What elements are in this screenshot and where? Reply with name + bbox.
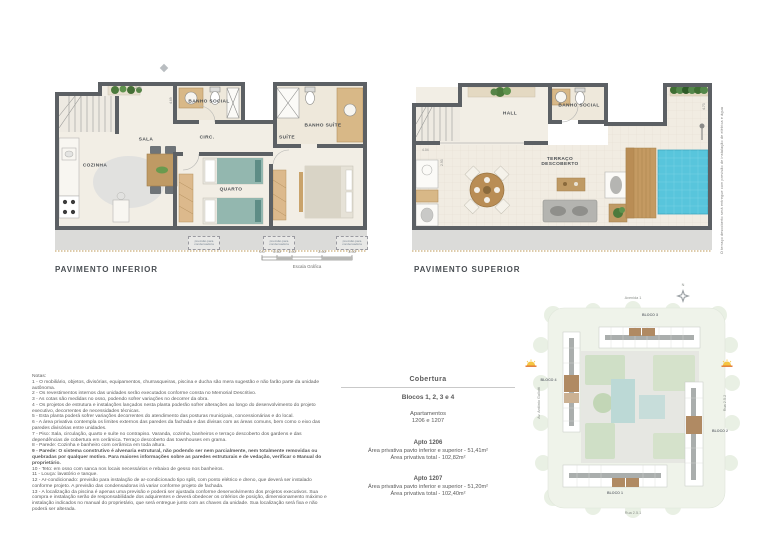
- bloco-1-label: BLOCO 1: [600, 491, 630, 495]
- dimension-label: 4.04: [422, 148, 429, 152]
- terrace-side-note: O terraço descoberto será entregue com p…: [720, 86, 724, 254]
- plan-title-inferior: PAVIMENTO INFERIOR: [55, 265, 158, 274]
- info-apartments: Apartamentos 1206 e 1207: [337, 411, 519, 425]
- stairs: [416, 107, 460, 141]
- info-blocks: Blocos 1, 2, 3 e 4: [337, 394, 519, 401]
- unit-total-line: Área privativa total - 102,40m²: [337, 491, 519, 497]
- site-plan-drawing: [533, 283, 768, 539]
- balcony-strip: [412, 230, 712, 251]
- sofa: [543, 200, 597, 222]
- floor-plan-superior: HALL BANHO SOCIAL TERRAÇO DESCOBERTO 4.0…: [412, 62, 712, 254]
- dimension-label: 4.73: [702, 103, 706, 110]
- plant-box: [609, 204, 627, 222]
- scale-bar: 0.0 0.50 1.00 2.00 3.00 Escala Gráfica: [258, 246, 362, 274]
- plan-sheet: COZINHA SALA CIRC. BANHO SOCIAL SUÍTE BA…: [0, 0, 768, 549]
- north-label: N: [671, 283, 695, 287]
- side-cabinet: [605, 172, 627, 198]
- bedroom-wardrobe: [179, 174, 193, 222]
- room-label-suite: SUÍTE: [279, 136, 295, 141]
- unit-area-line: Área privativa pavto inferior e superior…: [337, 484, 519, 490]
- courtyard: [581, 351, 699, 463]
- north-arrow-icon: [676, 289, 690, 303]
- bloco-4-label: BLOCO 4: [535, 378, 562, 382]
- note-item: 13 - A localização da piscina é apenas u…: [32, 490, 333, 513]
- dimension-label: 2.44: [135, 86, 142, 90]
- note-item: 4 - Os projetos de estrutura e instalaçõ…: [32, 403, 333, 415]
- unit-name: Apto 1207: [337, 476, 519, 482]
- site-plan: N Avenida 1 Rua 2.5.1 Av. Antônio Gallot…: [533, 283, 768, 539]
- room-label-banho-social: BANHO SOCIAL: [188, 100, 230, 105]
- room-label-terraco: TERRAÇO DESCOBERTO: [539, 157, 581, 167]
- room-label-banho-social: BANHO SOCIAL: [558, 104, 600, 109]
- notes-block: Notas: 1 - O mobiliário, objetos, divisó…: [32, 374, 333, 513]
- sun-icon: [721, 359, 733, 368]
- terrace-table: [464, 166, 510, 214]
- unit-1207: Apto 1207 Área privativa pavto inferior …: [337, 476, 519, 497]
- stairs: [59, 96, 115, 132]
- unit-info-panel: Cobertura Blocos 1, 2, 3 e 4 Apartamento…: [337, 376, 519, 497]
- room-label-hall: HALL: [503, 112, 517, 117]
- svg-text:0.0: 0.0: [259, 250, 264, 254]
- svg-text:0.50: 0.50: [273, 250, 280, 254]
- room-label-banho-suite: BANHO SUÍTE: [302, 124, 344, 129]
- apartments-numbers: 1206 e 1207: [337, 418, 519, 425]
- note-item: 1 - O mobiliário, objetos, divisórias, e…: [32, 380, 333, 392]
- unit-1206: Apto 1206 Área privativa pavto inferior …: [337, 440, 519, 461]
- note-item: 12 - Ar-condicionado: previsão para inst…: [32, 478, 333, 490]
- kitchen-counter: [59, 138, 79, 218]
- street-label-bottom: Rua 2.5.1: [611, 511, 655, 515]
- room-label-sala: SALA: [139, 138, 153, 143]
- bloco-3-label: BLOCO 3: [635, 313, 665, 317]
- condenser-box: previsão para condensadora: [188, 236, 220, 250]
- unit-area-line: Área privativa pavto inferior e superior…: [337, 448, 519, 454]
- street-label-top: Avenida 1: [613, 296, 653, 300]
- unit-total-line: Área privativa total - 102,82m²: [337, 455, 519, 461]
- sun-icon: [525, 359, 537, 368]
- svg-text:1.00: 1.00: [288, 250, 295, 254]
- pool-deck: [626, 148, 656, 218]
- street-label-left: Av. Antônio Gallotti: [537, 373, 541, 433]
- floor-plan-inferior: COZINHA SALA CIRC. BANHO SOCIAL SUÍTE BA…: [55, 62, 367, 254]
- laundry-fixtures: [416, 160, 438, 226]
- coffee-table: [557, 178, 585, 191]
- info-title: Cobertura: [337, 376, 519, 383]
- highlighted-unit-light: [564, 393, 579, 403]
- apartments-label: Apartamentos: [337, 411, 519, 418]
- note-item: 7 - Piso: Sala, circulação, quarto e suí…: [32, 432, 333, 444]
- svg-text:2.00: 2.00: [318, 250, 325, 254]
- street-label-right: Rua 2.5.2: [723, 381, 727, 425]
- svg-text:3.00: 3.00: [348, 250, 355, 254]
- unit-name: Apto 1206: [337, 440, 519, 446]
- planter: [468, 87, 535, 97]
- floor-plan-inferior-drawing: [55, 62, 367, 254]
- suite-wardrobe: [273, 170, 286, 220]
- pool: [658, 150, 708, 214]
- bloco-2-label: BLOCO 2: [705, 429, 735, 433]
- note-item: 9 - Parede: O sistema construtivo é alve…: [32, 449, 333, 466]
- single-bed-2: [203, 198, 263, 224]
- dimension-label: 2.93: [440, 159, 444, 166]
- info-divider: [341, 387, 515, 388]
- bath-social-fixtures: [552, 88, 585, 105]
- scale-bar-label: Escala Gráfica: [293, 264, 322, 269]
- dimension-label: 4.69: [169, 97, 173, 104]
- room-label-quarto: QUARTO: [220, 188, 243, 193]
- single-bed-1: [203, 158, 263, 184]
- double-bed: [299, 166, 353, 218]
- room-label-cozinha: COZINHA: [83, 164, 107, 169]
- note-item: 6 - A área privativa contempla os limite…: [32, 420, 333, 432]
- room-label-circ: CIRC.: [200, 136, 215, 141]
- plan-title-superior: PAVIMENTO SUPERIOR: [414, 265, 520, 274]
